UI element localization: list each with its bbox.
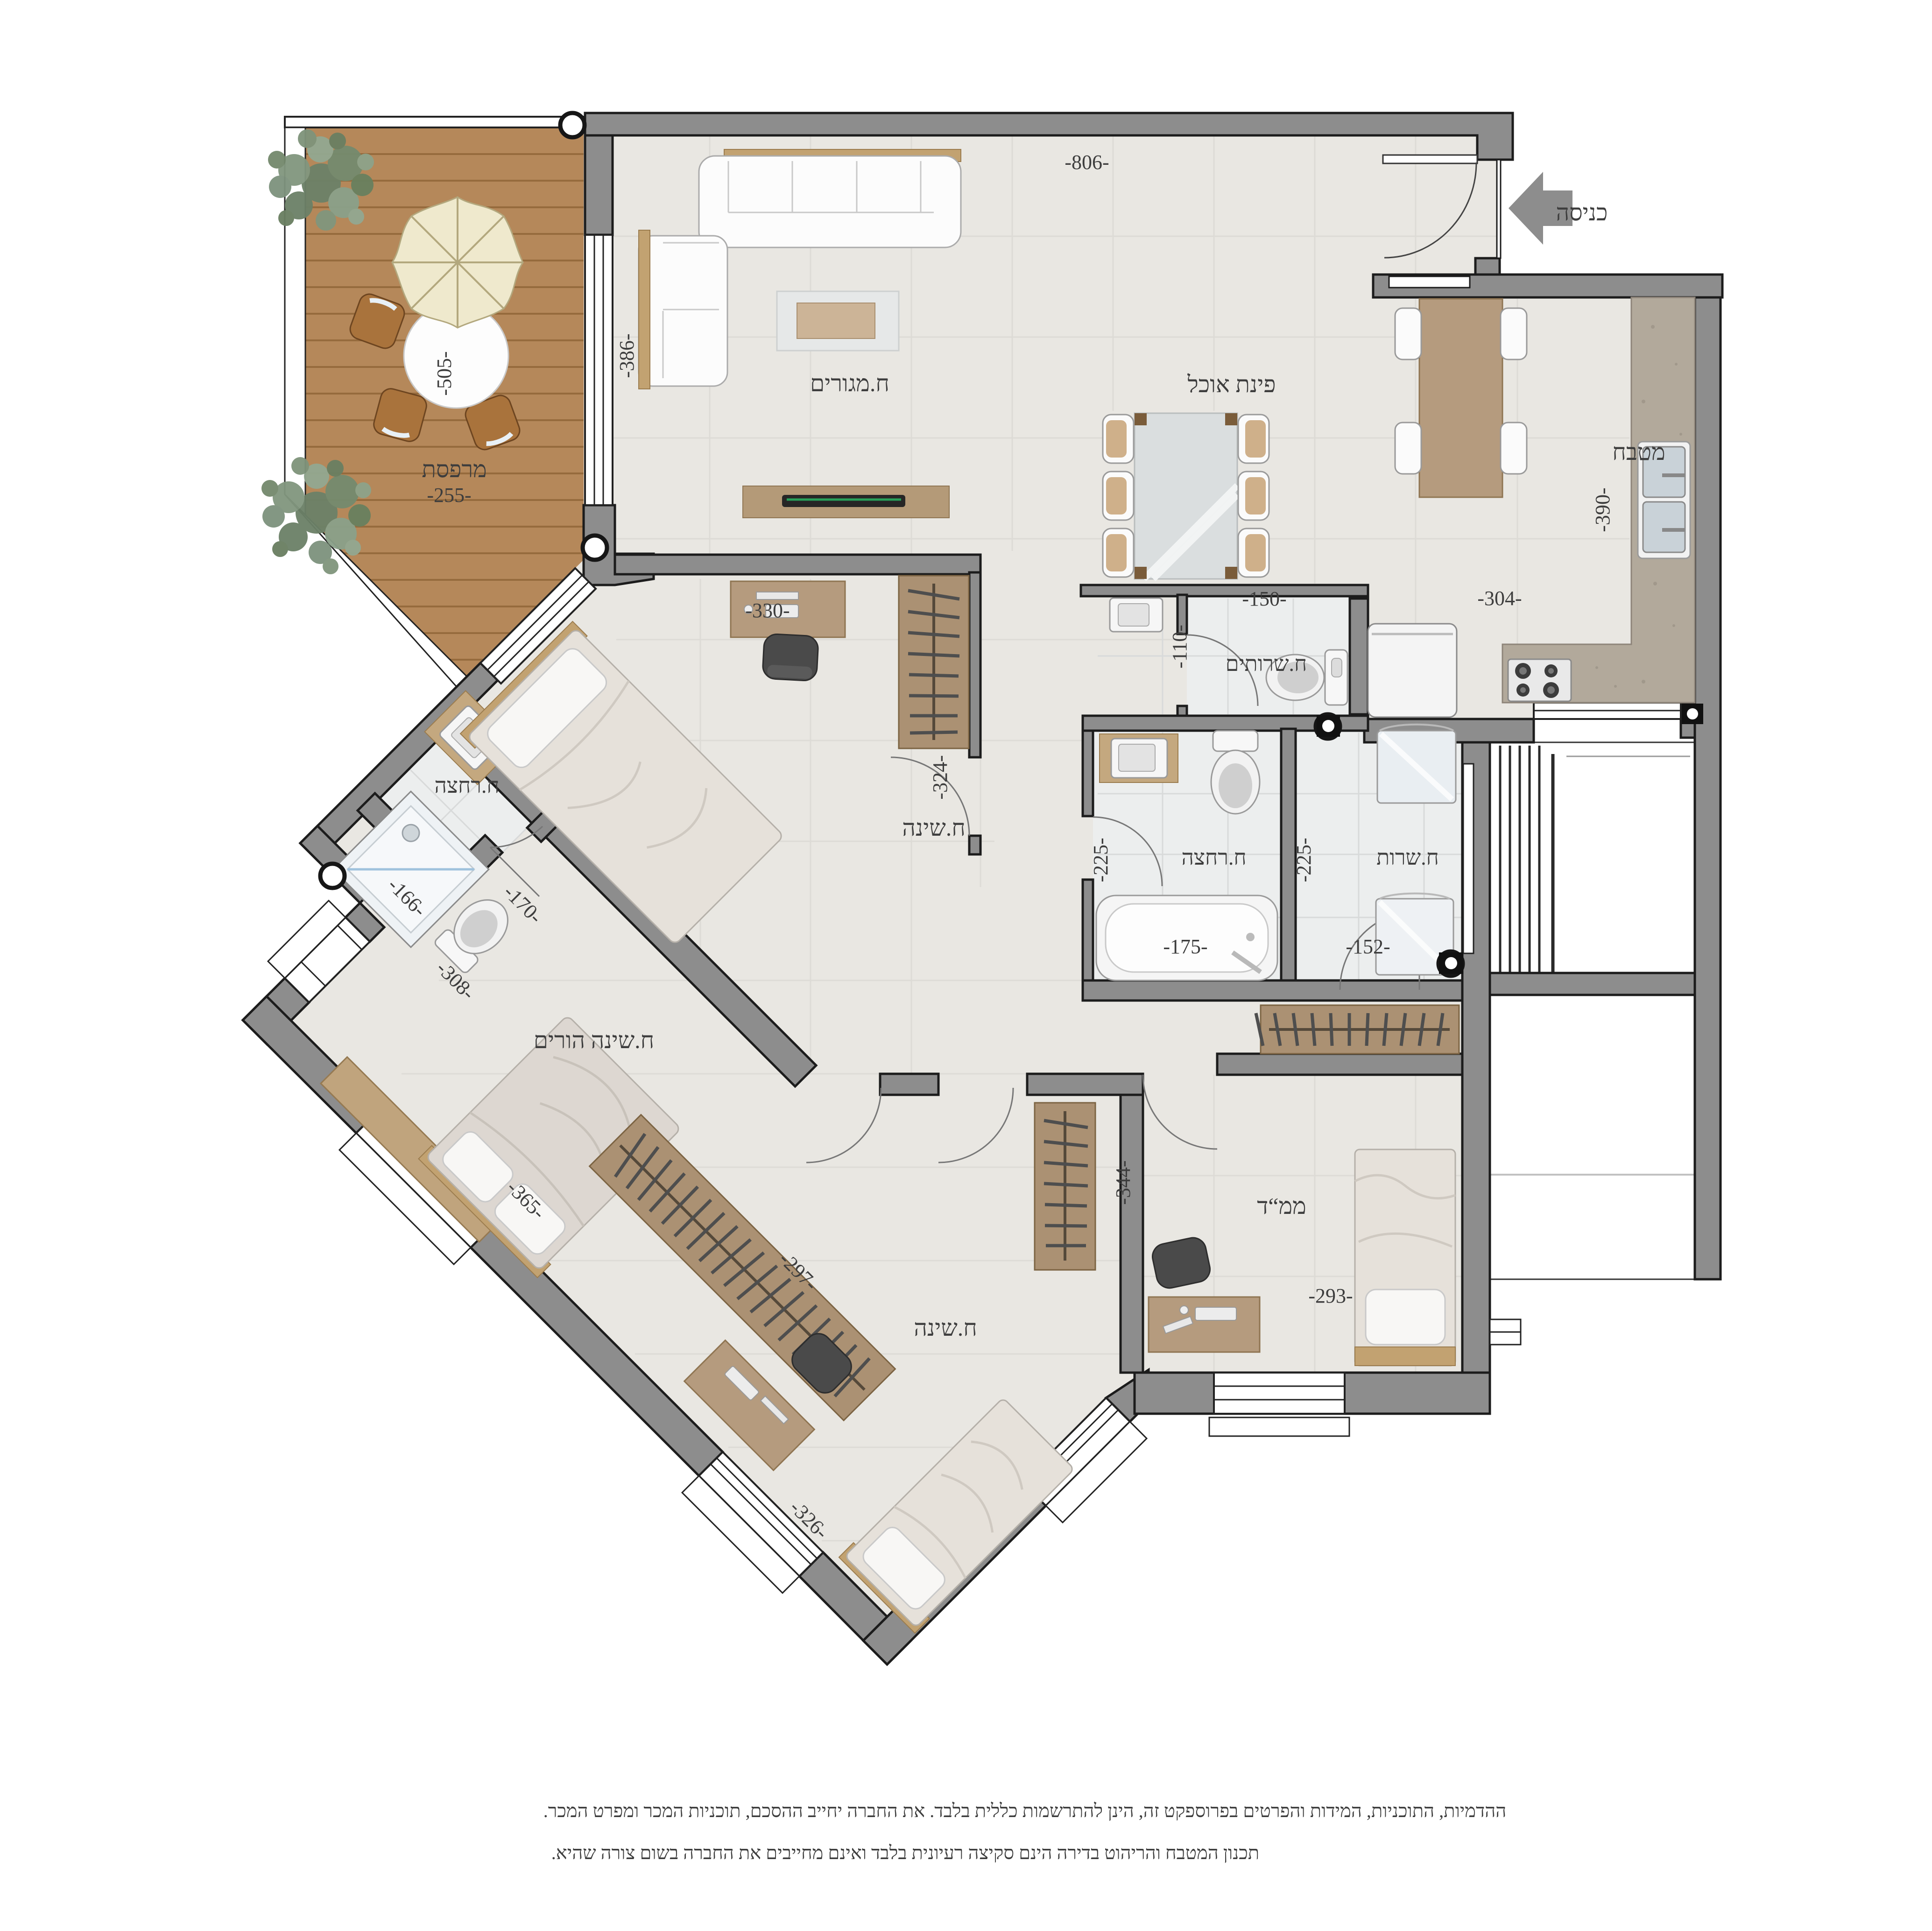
svg-text:ח.שרות: ח.שרות [1376, 846, 1439, 869]
svg-text:ח.שינה הורים: ח.שינה הורים [534, 1027, 655, 1053]
svg-text:ממ“ד: ממ“ד [1257, 1193, 1306, 1219]
svg-text:-505-: -505- [433, 351, 456, 395]
svg-text:ח.שרותים: ח.שרותים [1226, 652, 1307, 676]
svg-text:-110-: -110- [1168, 625, 1191, 669]
svg-text:-225-: -225- [1292, 838, 1315, 882]
svg-text:ח.שינה: ח.שינה [914, 1315, 977, 1341]
svg-text:מטבח: מטבח [1612, 439, 1665, 465]
svg-text:-225-: -225- [1089, 838, 1112, 882]
svg-text:פינת אוכל: פינת אוכל [1187, 371, 1276, 397]
svg-text:-806-: -806- [1065, 151, 1109, 174]
svg-text:-330-: -330- [745, 599, 790, 622]
svg-text:-255-: -255- [427, 484, 471, 507]
svg-text:ח.מגורים: ח.מגורים [810, 370, 889, 396]
svg-text:.ההדמיות, התוכניות, המידות והפ: .ההדמיות, התוכניות, המידות והפרטים בפרוס… [543, 1800, 1507, 1821]
svg-text:-390-: -390- [1591, 487, 1614, 532]
svg-text:מרפסת: מרפסת [422, 456, 487, 482]
svg-text:-152-: -152- [1346, 935, 1390, 958]
svg-text:.תכנון המטבח והריהוט בדירה הינ: .תכנון המטבח והריהוט בדירה הינם סקיצה רע… [551, 1842, 1259, 1863]
svg-text:ח.רחצה: ח.רחצה [1181, 846, 1246, 869]
svg-text:-304-: -304- [1477, 587, 1522, 610]
svg-text:-386-: -386- [615, 333, 638, 378]
svg-text:ח.שינה: ח.שינה [902, 815, 966, 841]
svg-text:-324-: -324- [929, 755, 952, 799]
svg-text:-344-: -344- [1112, 1160, 1135, 1205]
svg-text:-150-: -150- [1242, 587, 1286, 610]
svg-text:כניסה: כניסה [1556, 199, 1608, 226]
svg-text:ח.רחצה: ח.רחצה [434, 774, 499, 797]
svg-text:-293-: -293- [1308, 1284, 1353, 1307]
svg-text:-175-: -175- [1163, 935, 1207, 958]
